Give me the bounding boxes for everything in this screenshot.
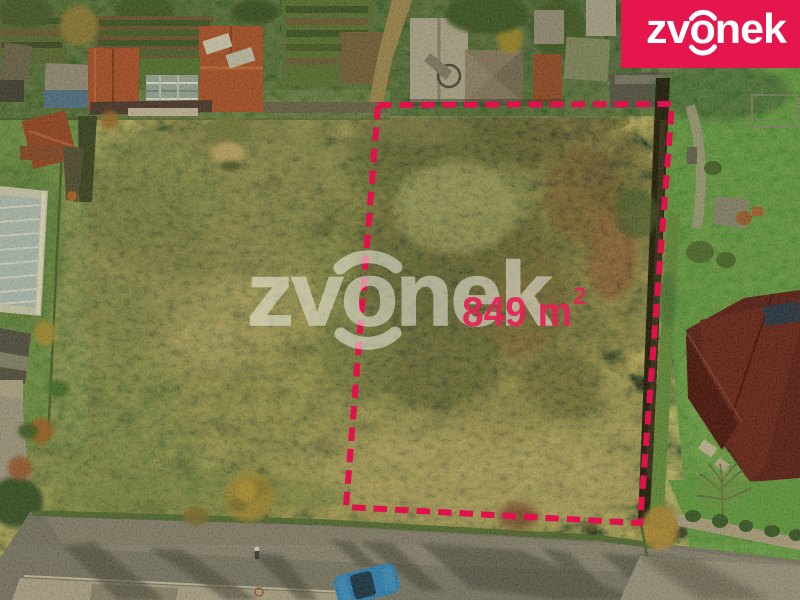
svg-text:2: 2 <box>573 283 586 310</box>
svg-text:zvonek: zvonek <box>646 5 788 52</box>
svg-text:849 m: 849 m <box>462 288 572 335</box>
